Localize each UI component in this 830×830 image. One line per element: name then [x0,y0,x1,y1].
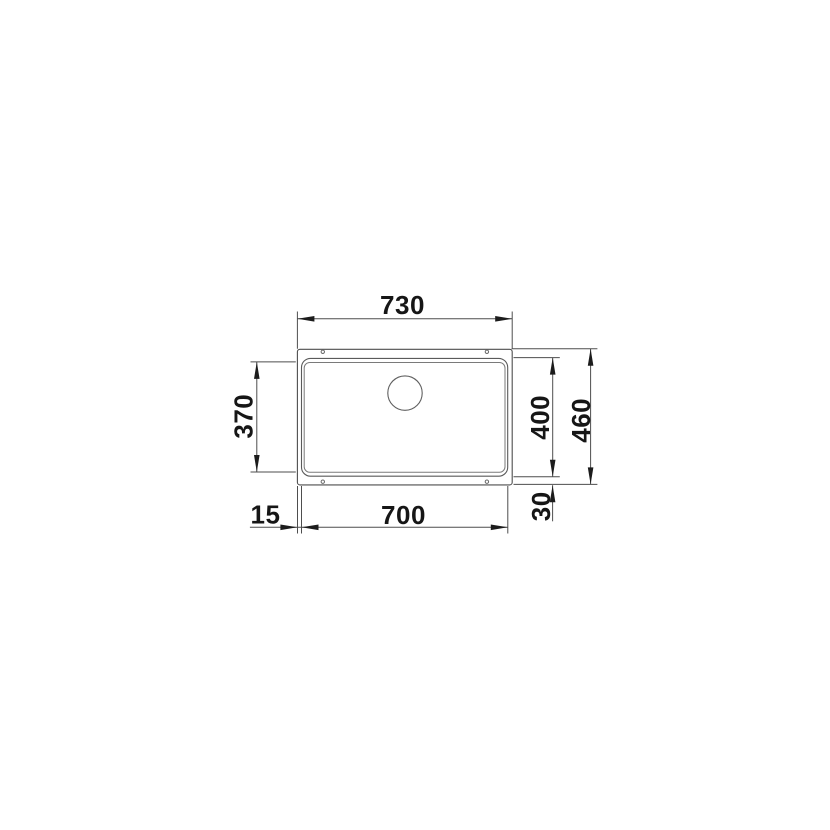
svg-text:700: 700 [381,500,426,530]
svg-text:370: 370 [229,394,259,439]
svg-text:400: 400 [525,395,555,440]
svg-text:460: 460 [566,398,596,443]
svg-text:730: 730 [380,290,425,320]
svg-text:30: 30 [526,491,556,521]
svg-text:15: 15 [251,500,281,530]
